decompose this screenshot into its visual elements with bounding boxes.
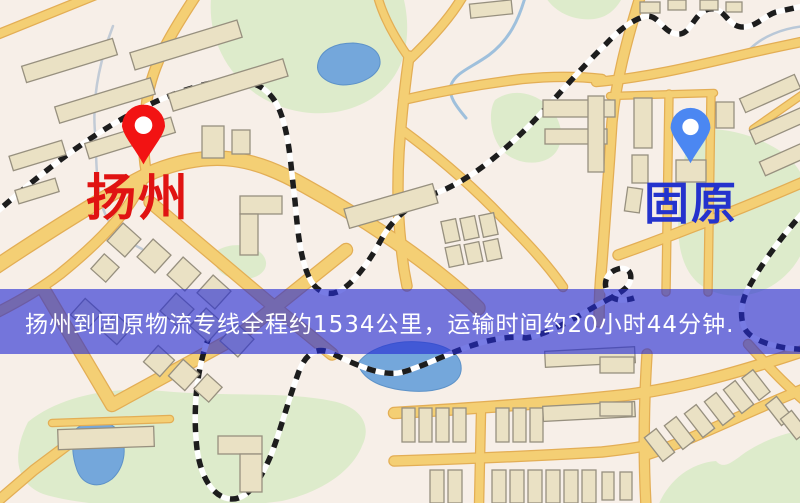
map-canvas[interactable]: 扬州 固原 扬州到固原物流专线全程约1534公里，运输时间约20小时44分钟.: [0, 0, 800, 503]
destination-pin-icon[interactable]: [668, 107, 713, 165]
map-tiles: [0, 0, 800, 503]
origin-pin-icon[interactable]: [120, 103, 167, 167]
destination-city-label: 固原: [644, 181, 738, 226]
route-info-text: 扬州到固原物流专线全程约1534公里，运输时间约20小时44分钟.: [0, 305, 734, 339]
origin-city-label: 扬州: [86, 173, 190, 223]
route-info-banner: 扬州到固原物流专线全程约1534公里，运输时间约20小时44分钟.: [0, 289, 800, 354]
